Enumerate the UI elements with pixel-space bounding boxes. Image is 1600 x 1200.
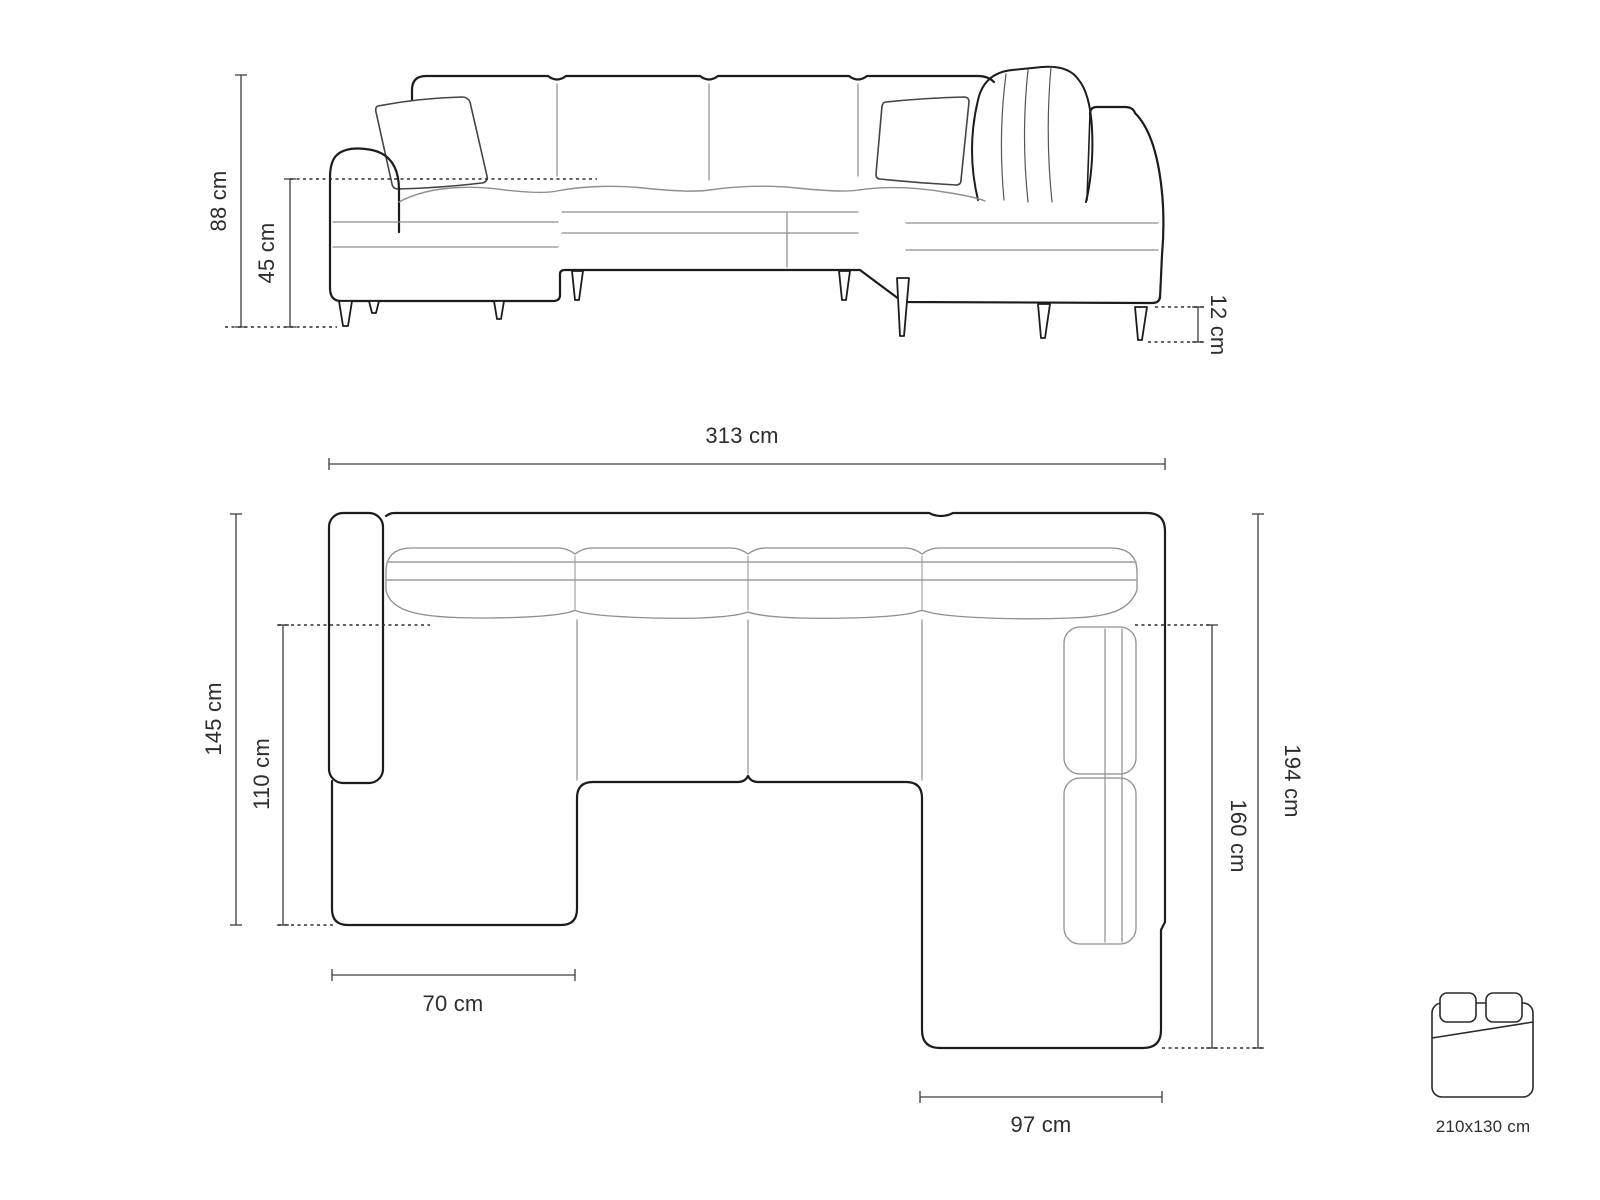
front-view-legs	[339, 271, 1147, 340]
bed-icon	[1432, 993, 1533, 1097]
sofa-dimension-diagram: 88 cm 45 cm 12 cm 313 cm 145 cm 110 cm 1…	[0, 0, 1600, 1200]
top-left-chaise-length-label: 110 cm	[249, 738, 275, 810]
top-right-chaise-width-label: 97 cm	[1011, 1112, 1072, 1138]
front-seat-height-label: 45 cm	[254, 223, 280, 284]
top-right-chaise-length-label: 160 cm	[1225, 799, 1251, 872]
top-total-width-label: 313 cm	[705, 423, 778, 449]
top-right-depth-label: 194 cm	[1279, 744, 1305, 817]
front-leg-height-label: 12 cm	[1205, 295, 1231, 356]
front-total-height-label: 88 cm	[206, 171, 232, 232]
diagram-canvas	[0, 0, 1600, 1200]
sofa-top-view-drawing	[329, 513, 1165, 1048]
sleeping-area-size-label: 210x130 cm	[1436, 1117, 1531, 1137]
sofa-front-view-drawing	[330, 67, 1163, 340]
top-left-chaise-width-label: 70 cm	[423, 991, 484, 1017]
top-view-dimension-lines	[230, 458, 1264, 1103]
top-left-depth-label: 145 cm	[201, 682, 227, 755]
